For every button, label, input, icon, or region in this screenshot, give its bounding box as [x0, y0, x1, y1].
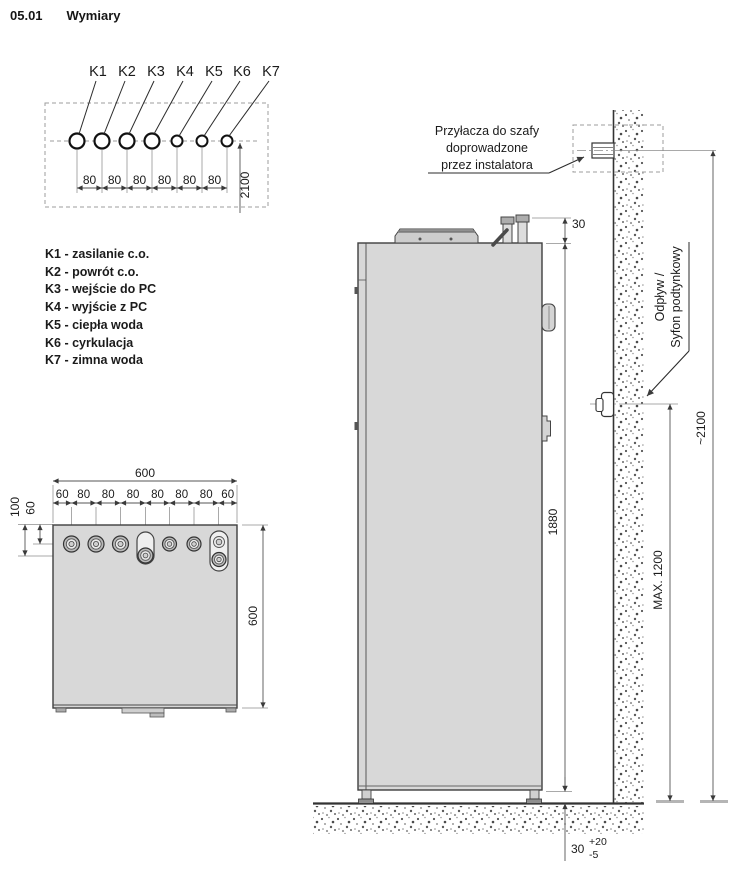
cabinet-bottom-tabs	[56, 708, 236, 717]
port-label-k7: K7	[262, 64, 280, 80]
port-k3	[120, 134, 135, 149]
port-k7	[222, 136, 233, 147]
dim-seg: 80	[175, 489, 188, 501]
dim-seg: 80	[200, 489, 213, 501]
fitting-6	[187, 537, 201, 551]
legend-item-k6: K6 - cyrkulacja	[45, 335, 156, 353]
dim-seg: 80	[127, 489, 140, 501]
page-header: 05.01 Wymiary	[10, 8, 121, 23]
side-view: Przyłacza do szafy doprowadzone przez in…	[290, 55, 738, 869]
dim-seg: 80	[102, 489, 115, 501]
dim-tol-minus: -5	[589, 849, 598, 861]
port-label-k3: K3	[147, 64, 165, 80]
dim-80: 80	[83, 173, 97, 187]
top-vent-panel	[395, 229, 478, 243]
dim-80: 80	[108, 173, 122, 187]
dim-1880: 1880	[546, 508, 560, 535]
drain-callout-line-2: Syfon podtynkowy	[669, 246, 683, 348]
port-k4	[145, 134, 160, 149]
dim-seg: 80	[77, 489, 90, 501]
dim-80: 80	[158, 173, 172, 187]
valve-height-dim: 30	[532, 217, 586, 244]
fitting-3	[113, 536, 129, 552]
cabinet-feet	[359, 790, 542, 804]
dim-100: 100	[8, 497, 22, 517]
port-label-k1: K1	[89, 64, 107, 80]
dim-2100-total: ~2100	[694, 411, 708, 445]
legend-item-k5: K5 - ciepła woda	[45, 317, 156, 335]
cabinet-side-body	[358, 243, 542, 790]
fitting-4-slot	[137, 532, 154, 564]
floor-hatch	[313, 806, 644, 834]
topview-depth-dim: 600	[246, 525, 263, 708]
drain-callout-line-1: Odpływ /	[653, 272, 667, 321]
callout-line-1: Przyłacza do szafy	[435, 124, 540, 138]
hinge-nub-bottom	[355, 422, 359, 430]
port-label-k2: K2	[118, 64, 136, 80]
total-height-dim: ~2100	[694, 151, 713, 802]
port-label-k4: K4	[176, 64, 194, 80]
ports-schematic: 80 80 80 80 80 80 K1 K2	[35, 55, 300, 220]
topview-segment-dims: 60 80 80 80 80 80 80 60	[53, 489, 237, 503]
ports-outline-dashed	[45, 103, 268, 207]
dim-60: 60	[24, 501, 38, 515]
port-k5	[172, 136, 183, 147]
dim-seg: 60	[221, 489, 234, 501]
legend-item-k4: K4 - wyjście z PC	[45, 299, 156, 317]
ports-legend: K1 - zasilanie c.o. K2 - powrót c.o. K3 …	[45, 246, 156, 370]
port-k1	[70, 134, 85, 149]
ports-height-dim: 2100	[238, 143, 252, 213]
legend-item-k7: K7 - zimna woda	[45, 352, 156, 370]
drain-max-height-dim: MAX. 1200	[651, 404, 670, 801]
dim-max-1200: MAX. 1200	[651, 550, 665, 610]
port-labels: K1 K2 K3 K4 K5 K6 K7	[89, 64, 280, 80]
fitting-5	[163, 537, 177, 551]
fitting-1	[64, 536, 80, 552]
fitting-2	[88, 536, 104, 552]
dim-80: 80	[208, 173, 222, 187]
port-k2	[95, 134, 110, 149]
dim-tol-plus: +20	[589, 836, 607, 848]
legend-item-k2: K2 - powrót c.o.	[45, 264, 156, 282]
dim-600-depth: 600	[246, 606, 260, 626]
port-k6	[197, 136, 208, 147]
wall-hatch	[615, 110, 644, 804]
ports-extension-lines	[77, 148, 227, 193]
dim-30-valve: 30	[572, 217, 586, 231]
dim-2100: 2100	[238, 171, 252, 198]
dim-80: 80	[183, 173, 197, 187]
port-leader-lines	[79, 81, 269, 136]
topview-width-dim: 600	[53, 466, 237, 481]
wall-callout: Przyłacza do szafy doprowadzone przez in…	[428, 124, 584, 173]
doc-number: 05.01	[10, 8, 43, 23]
legend-item-k1: K1 - zasilanie c.o.	[45, 246, 156, 264]
drain-callout: Odpływ / Syfon podtynkowy	[647, 242, 689, 396]
page-title: Wymiary	[67, 8, 121, 23]
port-label-k5: K5	[205, 64, 223, 80]
dimension-drawing-page: 05.01 Wymiary 80 80 80 80 80 80	[0, 0, 738, 869]
dim-600-width: 600	[135, 466, 155, 480]
top-valves	[493, 215, 529, 245]
drain-fitting	[596, 393, 614, 417]
side-pipe-stub	[542, 304, 555, 331]
dim-80: 80	[133, 173, 147, 187]
legend-item-k3: K3 - wejście do PC	[45, 281, 156, 299]
callout-line-2: doprowadzone	[446, 141, 528, 155]
dim-seg: 60	[56, 489, 69, 501]
callout-line-3: przez instalatora	[441, 158, 533, 172]
dim-30-floor: 30	[571, 842, 585, 856]
port-circles	[70, 134, 233, 149]
port-label-k6: K6	[233, 64, 251, 80]
side-bracket	[542, 416, 551, 441]
topview-offset-dims: 100 60	[8, 497, 40, 556]
hinge-nub-top	[355, 287, 359, 294]
top-view: 600 60 80 80 80 80 80 80 60 100 60	[5, 450, 295, 740]
dim-seg: 80	[151, 489, 164, 501]
fitting-7-slot	[210, 531, 228, 571]
